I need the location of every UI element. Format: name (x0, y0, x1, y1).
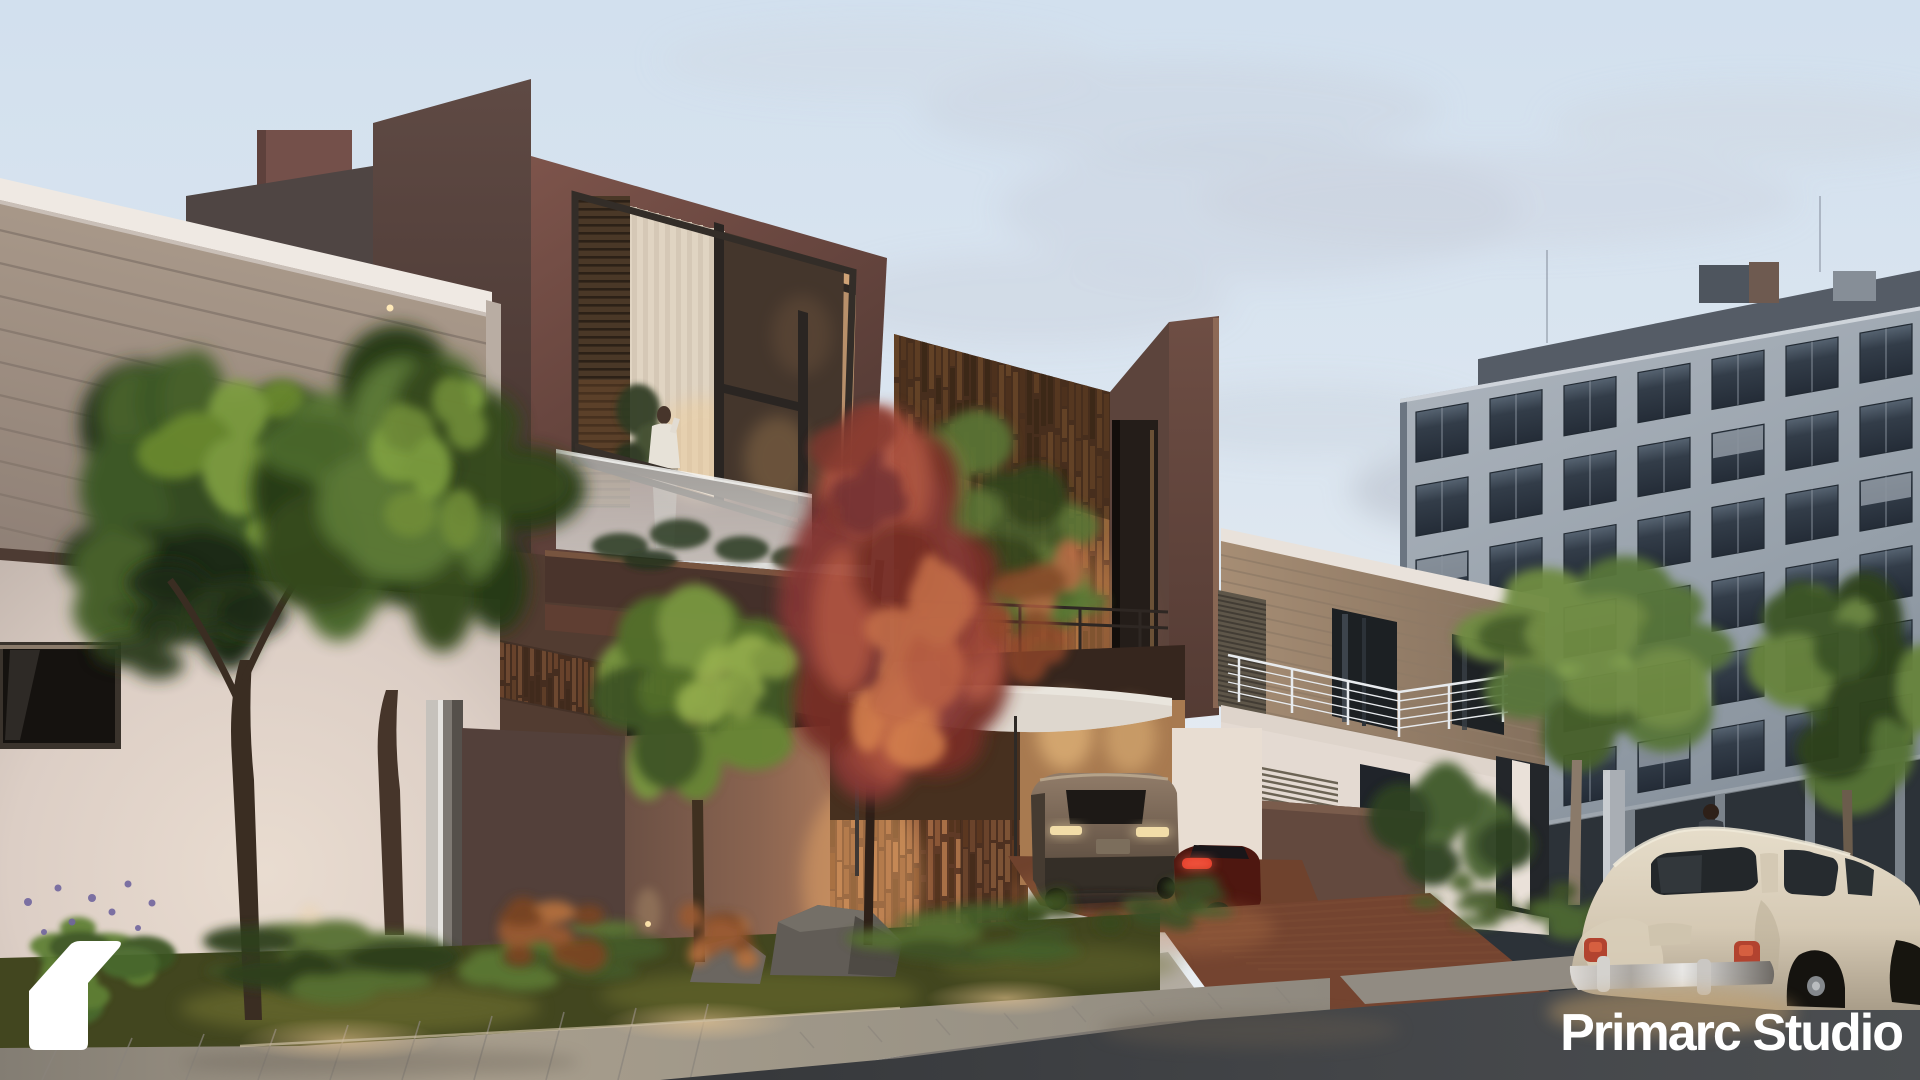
svg-text:Primarc Studio: Primarc Studio (1560, 1004, 1902, 1062)
